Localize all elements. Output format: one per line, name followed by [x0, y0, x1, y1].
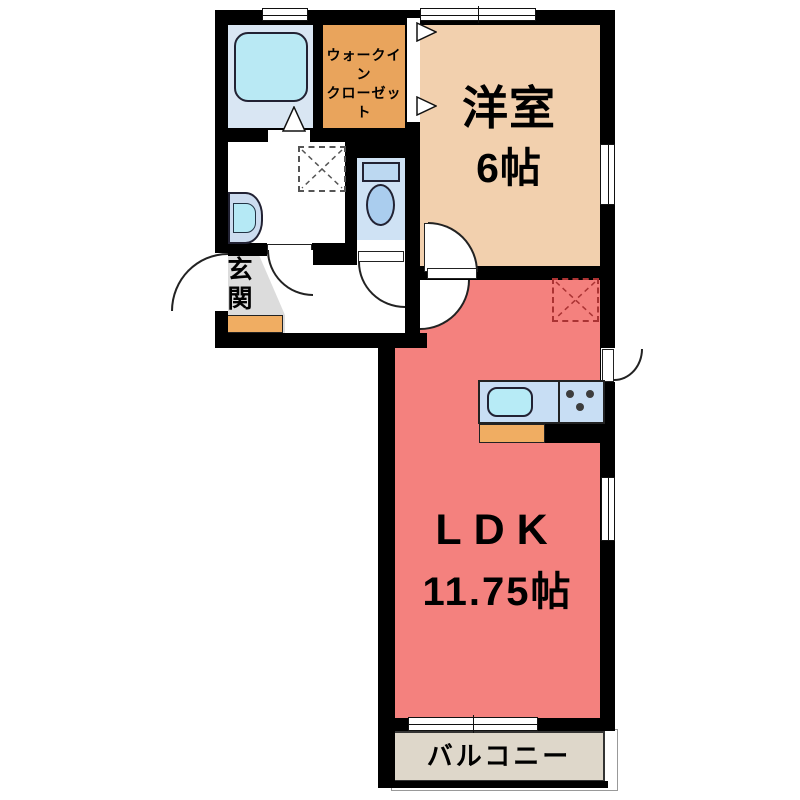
bathtub-icon: [234, 32, 308, 102]
entrance-label: 玄関: [226, 256, 254, 314]
wall-between-doors: [312, 243, 357, 265]
ldk-size: 11.75帖: [395, 569, 600, 615]
stove-burners-icon: [576, 403, 584, 411]
western-room-label: 洋室 6帖: [418, 82, 600, 192]
sliding-door-balcony-icon: [408, 717, 538, 731]
toilet-icon: [366, 184, 395, 226]
wic-label: ウォークイン クローゼット: [320, 46, 408, 122]
window-western-top-icon: [420, 8, 536, 21]
kitchen-counter-divider: [558, 381, 560, 423]
entrance-door-arc-icon: [171, 253, 228, 311]
wall-balcony-bottom: [382, 781, 608, 788]
closet-door-triangle-icon: [416, 22, 437, 42]
ldk-label: LDK 11.75帖: [395, 506, 600, 615]
washing-machine-pad-icon: [298, 146, 346, 192]
stove-burners-icon: [566, 390, 574, 398]
entrance-step: [222, 315, 283, 333]
western-room-size: 6帖: [418, 145, 600, 192]
service-door-leaf: [602, 349, 614, 382]
window-western-right-icon: [600, 144, 615, 205]
wall-kitchen-stub: [545, 423, 600, 443]
bath-door-triangle-icon: [282, 106, 306, 132]
service-door-arc-icon: [614, 349, 643, 381]
western-room-name: 洋室: [418, 82, 600, 135]
toilet-tank-icon: [362, 162, 400, 182]
ldk-door-leaf: [427, 268, 477, 279]
floor-plan: ウォークイン クローゼット 洋室 6帖 LDK 11.75帖 玄関 バルコニー: [0, 0, 800, 800]
kitchen-cabinet-icon: [479, 424, 545, 443]
window-bathroom-top-icon: [262, 8, 308, 21]
stove-burners-icon: [586, 390, 594, 398]
washbasin-bowl-icon: [233, 203, 256, 233]
wall-hallway-bottom: [215, 333, 427, 348]
kitchen-sink-icon: [487, 387, 533, 417]
refrigerator-pad-icon: [552, 278, 599, 322]
toilet-door-leaf: [358, 251, 404, 262]
window-ldk-right-icon: [601, 477, 615, 541]
wall-under-bath-wic: [215, 128, 420, 142]
balcony-label: バルコニー: [393, 742, 605, 772]
wic-label-line2: クローゼット: [320, 84, 408, 122]
ldk-name: LDK: [395, 506, 600, 555]
wic-label-line1: ウォークイン: [320, 46, 408, 84]
